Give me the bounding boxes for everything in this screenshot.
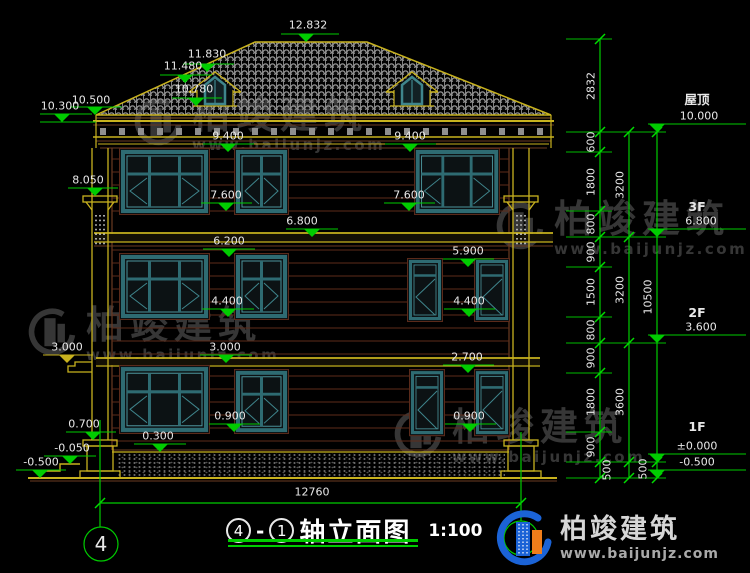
floor-band-3f (94, 233, 553, 246)
roof-outline (96, 42, 551, 118)
title-underline (228, 545, 418, 547)
window-3f-left (120, 149, 210, 215)
dormer-right (386, 72, 438, 106)
window-1f-right-a (410, 370, 445, 436)
title-text: 轴立面图 (299, 512, 411, 549)
company-logo-icon (492, 510, 552, 568)
window-2f-right-b (475, 259, 510, 322)
title-underline (228, 539, 418, 542)
company-logo: 柏竣建筑 www.baijunjz.com (492, 510, 719, 568)
cornice (93, 115, 554, 148)
window-2f-right-a (408, 259, 443, 322)
dimension-chain-lines (600, 39, 657, 478)
cad-linework (0, 0, 750, 573)
company-logo-brand: 柏竣建筑 (560, 516, 719, 543)
window-3f-middle (235, 149, 289, 215)
window-2f-left (120, 254, 210, 320)
windows (120, 149, 510, 436)
pillar-ledge (68, 362, 92, 372)
company-logo-site: www.baijunjz.com (560, 546, 719, 562)
window-3f-right (414, 149, 499, 215)
elevation-drawing: 柏竣建筑 www.baijunjz.com 柏竣建筑 www.baijunjz.… (0, 0, 750, 573)
drawing-title: 4 - 1 轴立面图 1:100 (226, 512, 482, 549)
level-label-lines (648, 124, 746, 470)
dimension-extension-lines (566, 39, 666, 478)
plinth (112, 450, 509, 452)
title-scale: 1:100 (428, 521, 482, 541)
window-1f-right-b (475, 370, 510, 436)
axis-bubble-left (84, 527, 118, 561)
window-2f-middle (235, 254, 289, 320)
window-1f-left (120, 366, 210, 434)
